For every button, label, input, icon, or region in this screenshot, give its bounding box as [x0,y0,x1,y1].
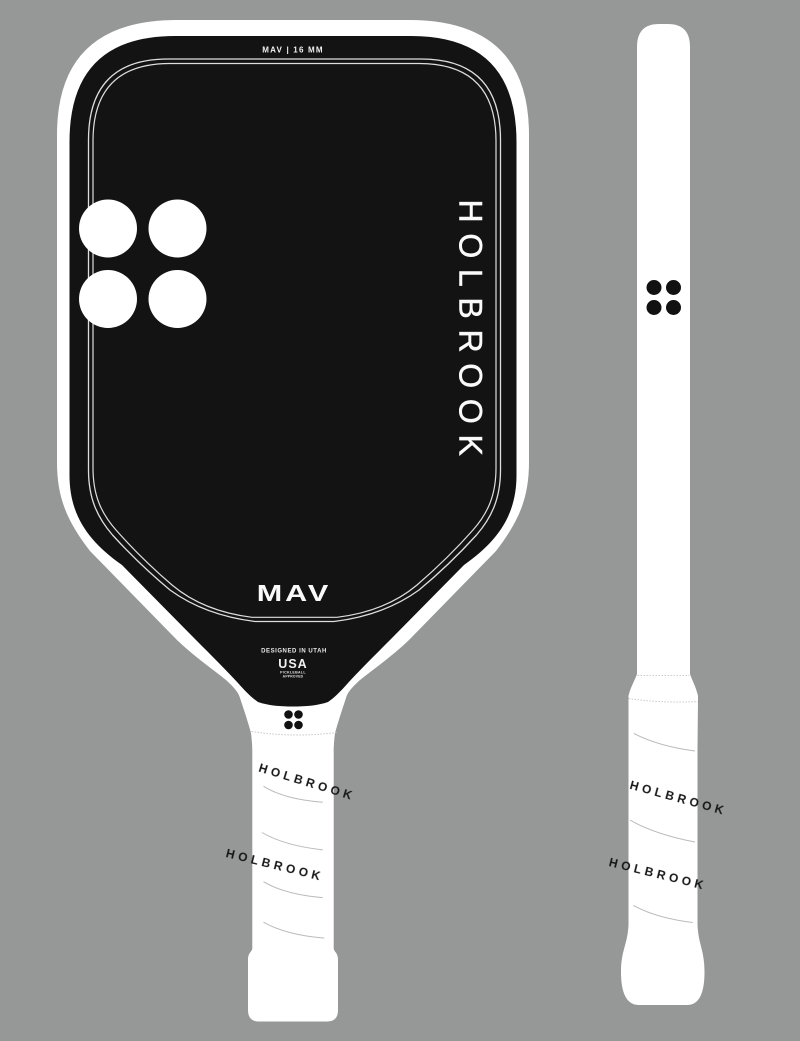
svg-text:MAV | 16 MM: MAV | 16 MM [262,45,324,54]
svg-text:HOLBROOK: HOLBROOK [453,200,489,467]
svg-text:USA: USA [278,657,307,671]
svg-text:DESIGNED IN UTAH: DESIGNED IN UTAH [261,649,327,655]
svg-text:MAV: MAV [257,581,331,606]
svg-text:APPROVED: APPROVED [283,675,304,679]
